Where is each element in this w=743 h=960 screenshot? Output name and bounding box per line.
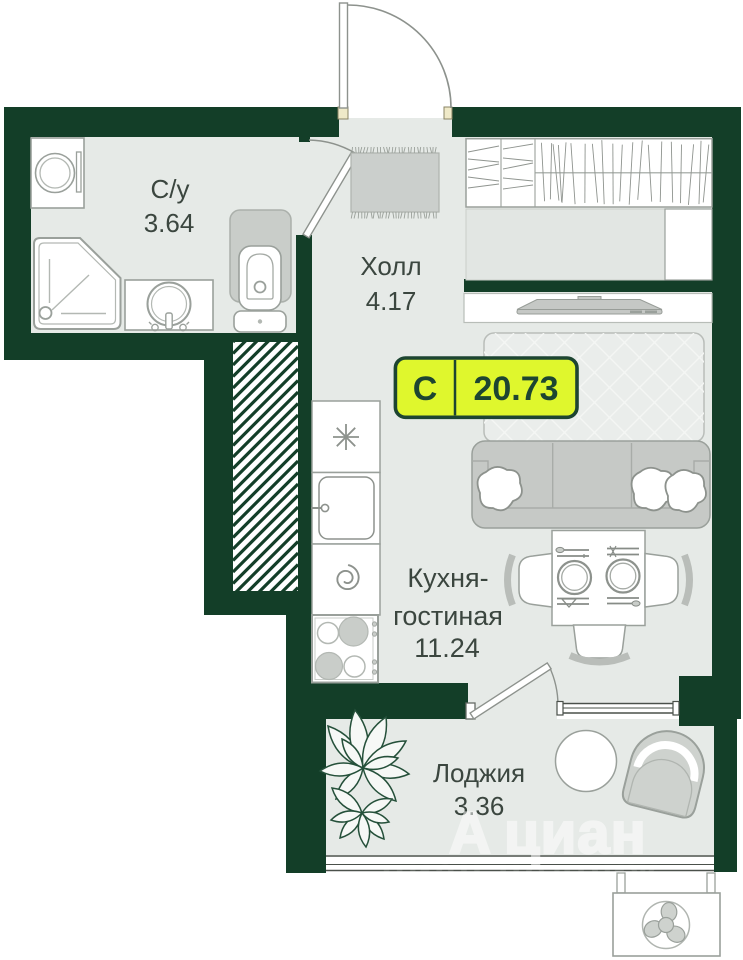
svg-text:4.17: 4.17 (366, 286, 417, 316)
svg-text:циан недвиж: циан недвиж (381, 851, 659, 895)
svg-text:Кухня-: Кухня- (407, 563, 488, 593)
svg-text:11.24: 11.24 (414, 633, 480, 663)
svg-text:3.64: 3.64 (144, 208, 195, 238)
svg-text:С/у: С/у (151, 174, 190, 204)
svg-text:Холл: Холл (360, 251, 421, 281)
svg-text:Лоджия: Лоджия (433, 758, 525, 788)
svg-text:С: С (413, 370, 438, 408)
svg-text:гостиная: гостиная (393, 601, 503, 631)
svg-text:20.73: 20.73 (473, 370, 558, 408)
